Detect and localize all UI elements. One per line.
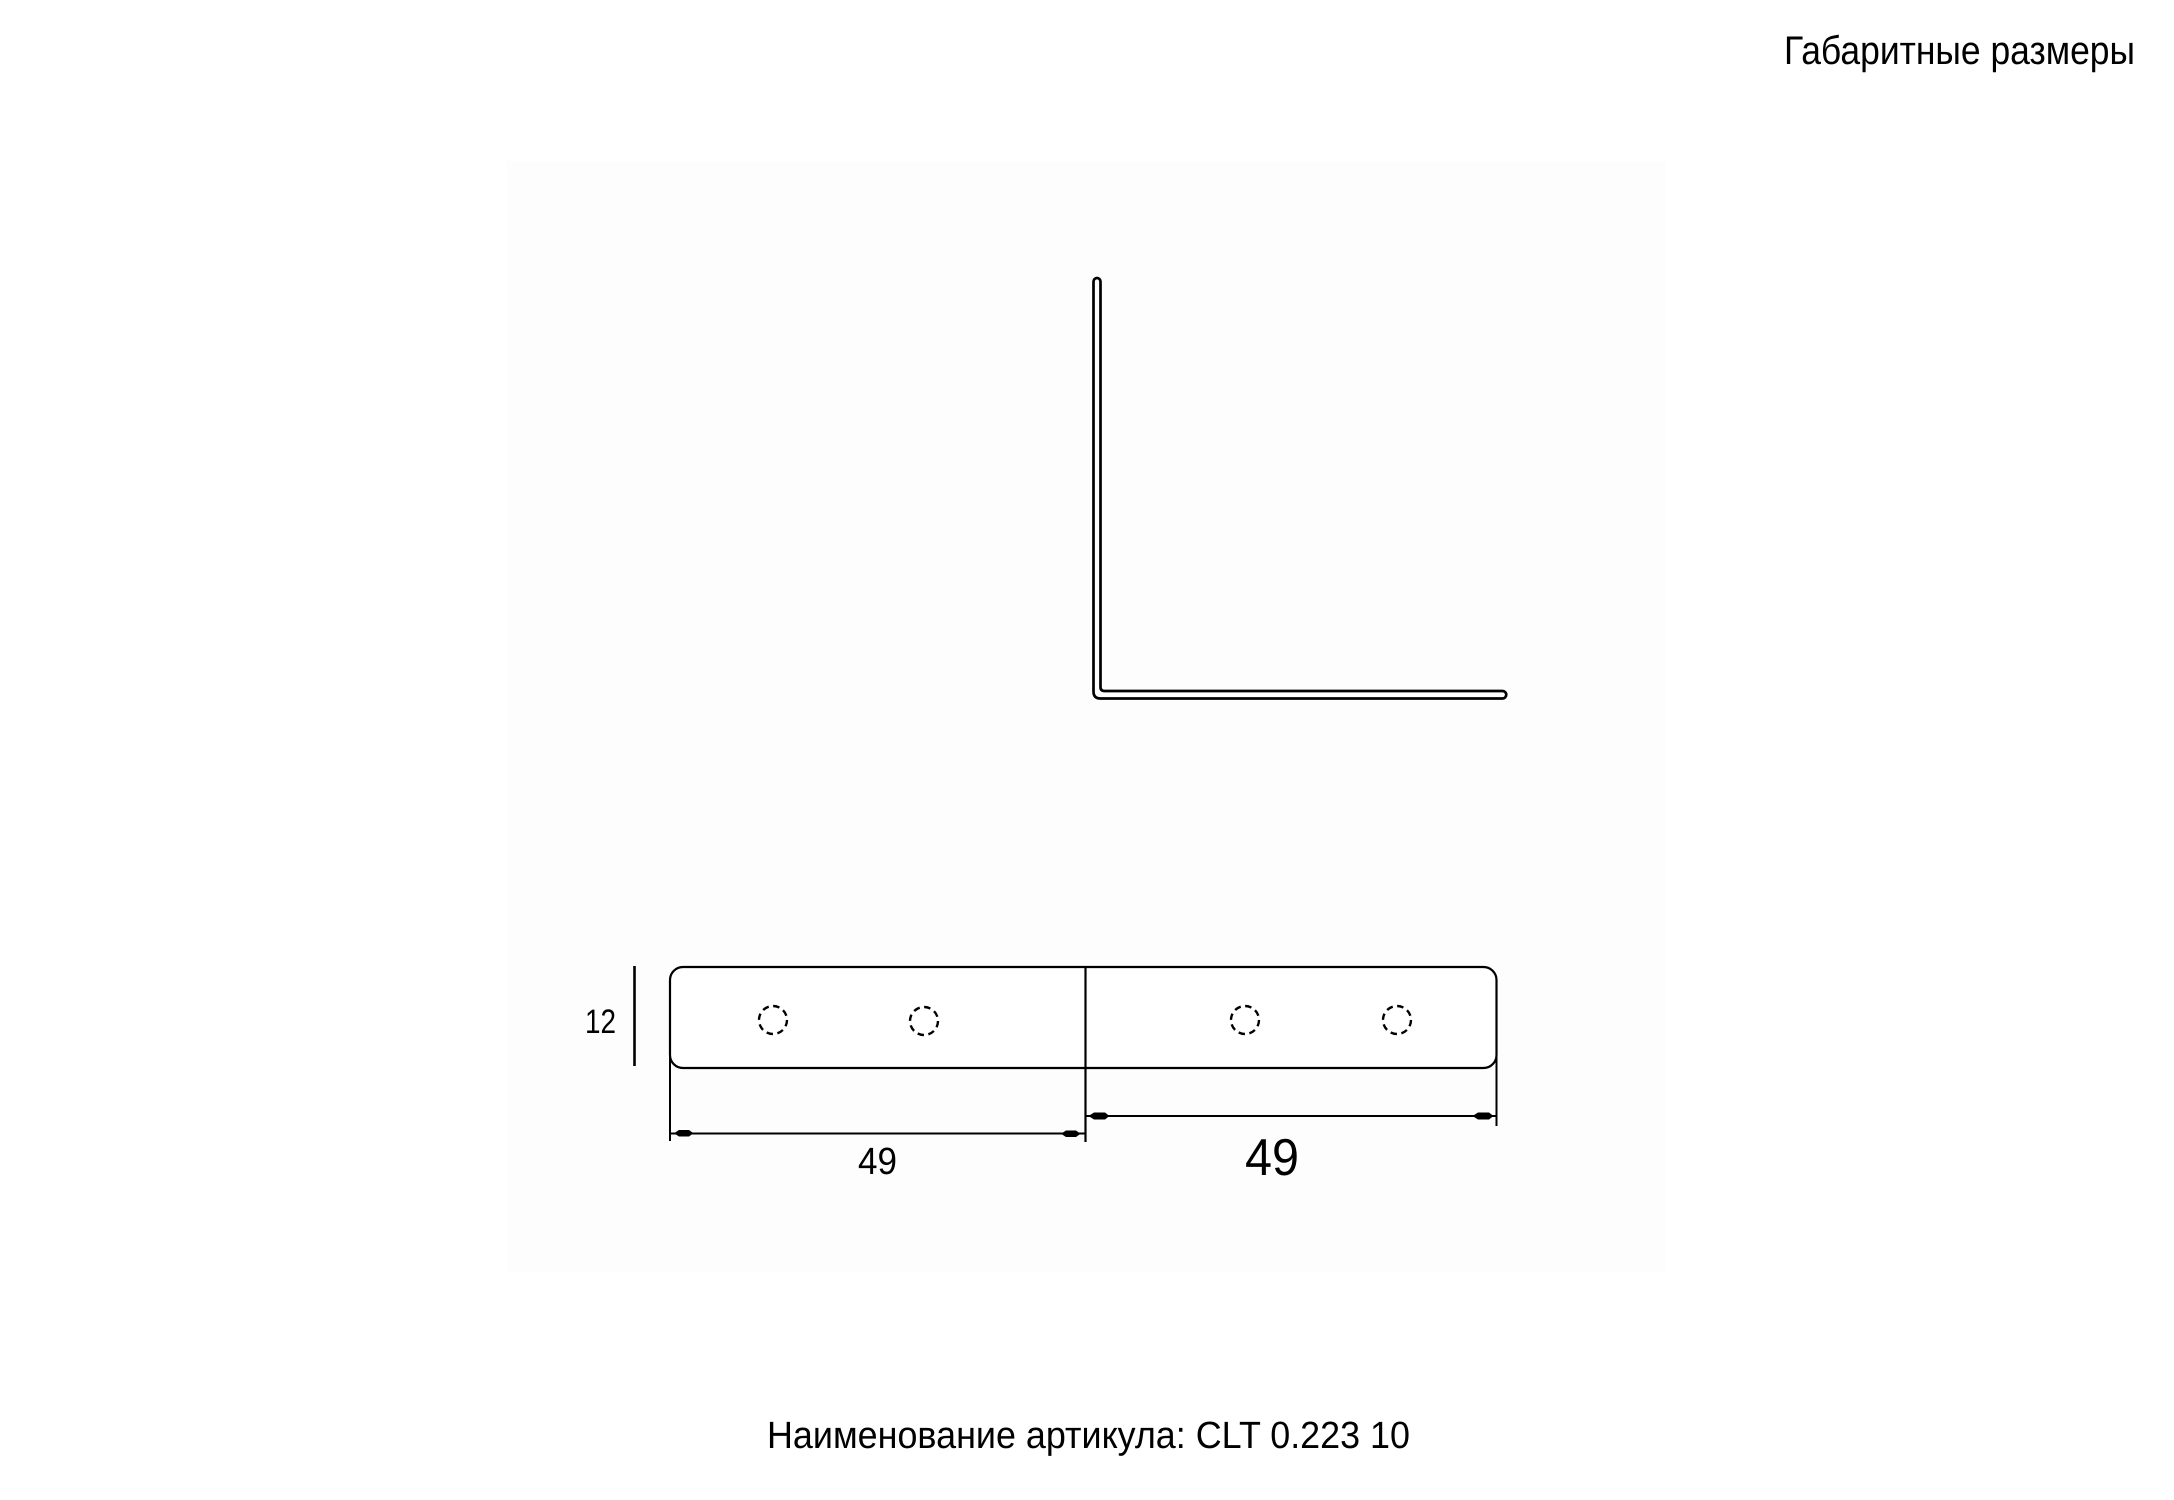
svg-text:49: 49: [858, 1141, 897, 1183]
svg-text:12: 12: [585, 1003, 616, 1041]
svg-text:Габаритные размеры: Габаритные размеры: [1784, 29, 2135, 73]
svg-text:49: 49: [1245, 1129, 1299, 1187]
svg-text:Наименование артикула: CLT 0.2: Наименование артикула: CLT 0.223 10: [767, 1415, 1410, 1457]
